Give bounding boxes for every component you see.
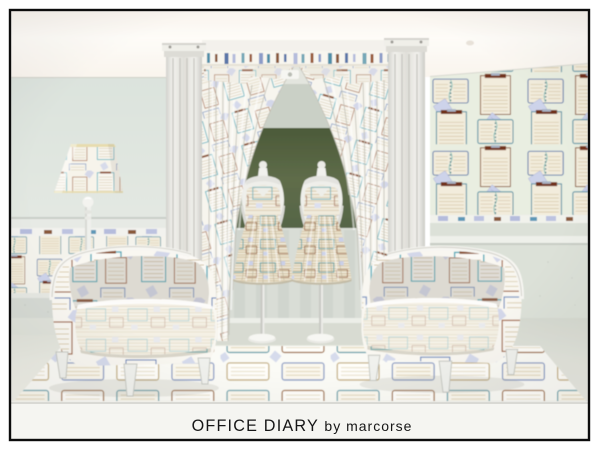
svg-text:OFFICE DIARY by marcorse: OFFICE DIARY by marcorse	[192, 417, 413, 435]
